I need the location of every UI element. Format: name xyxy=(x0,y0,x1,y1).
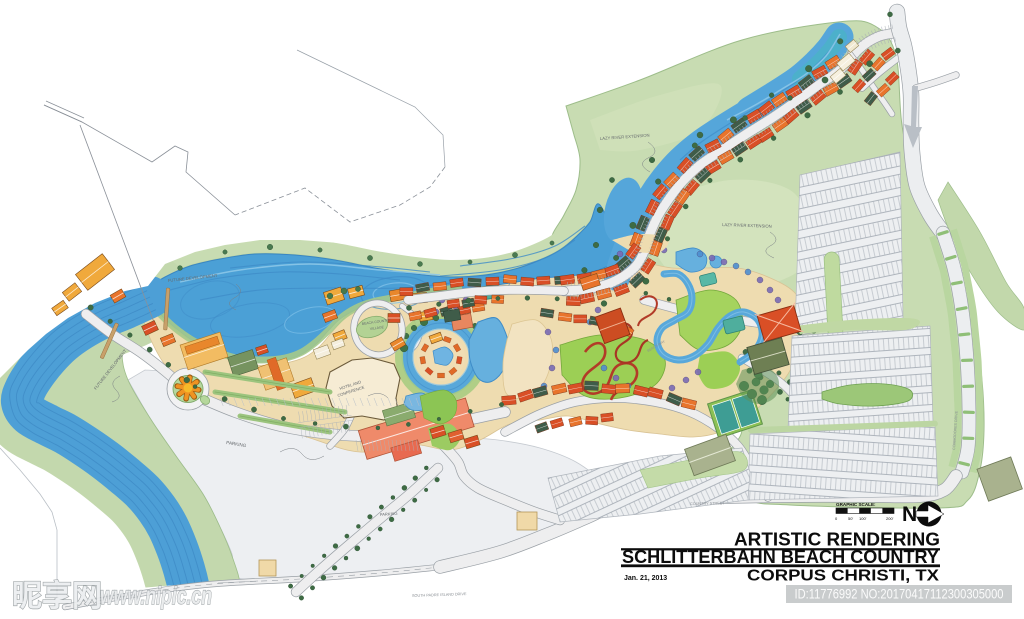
svg-text:N: N xyxy=(902,503,917,526)
svg-text:ID:11776992 NO:201704171123003: ID:11776992 NO:20170417112300305000 xyxy=(795,586,1004,602)
svg-text:CORPUS CHRISTI, TX: CORPUS CHRISTI, TX xyxy=(747,568,939,585)
svg-text:COUNTRY STREET: COUNTRY STREET xyxy=(690,501,725,506)
svg-text:昵享网: 昵享网 xyxy=(12,579,102,613)
svg-text:50': 50' xyxy=(848,516,853,521)
svg-text:SCHLITTERBAHN BEACH COUNTRY: SCHLITTERBAHN BEACH COUNTRY xyxy=(622,546,940,567)
svg-text:200': 200' xyxy=(886,516,894,521)
svg-text:100': 100' xyxy=(859,516,867,521)
svg-text:www.nipic.cn: www.nipic.cn xyxy=(100,582,212,610)
svg-text:Jan. 21, 2013: Jan. 21, 2013 xyxy=(624,575,667,582)
svg-text:GRAPHIC SCALE:: GRAPHIC SCALE: xyxy=(836,502,876,507)
